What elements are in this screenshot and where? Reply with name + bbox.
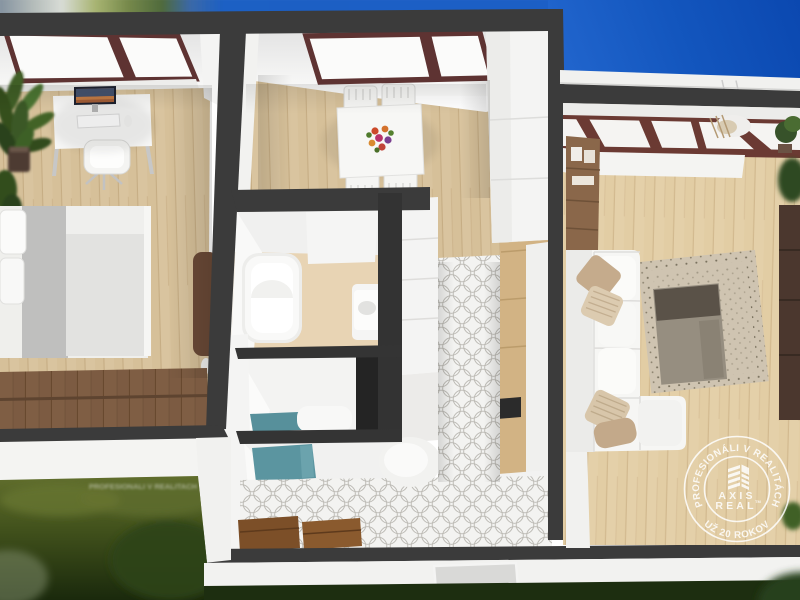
svg-text:REAL: REAL	[715, 500, 756, 512]
svg-text:TM: TM	[755, 499, 761, 504]
svg-text:PROFESIONALI V REALITACH: PROFESIONALI V REALITACH	[89, 482, 197, 491]
